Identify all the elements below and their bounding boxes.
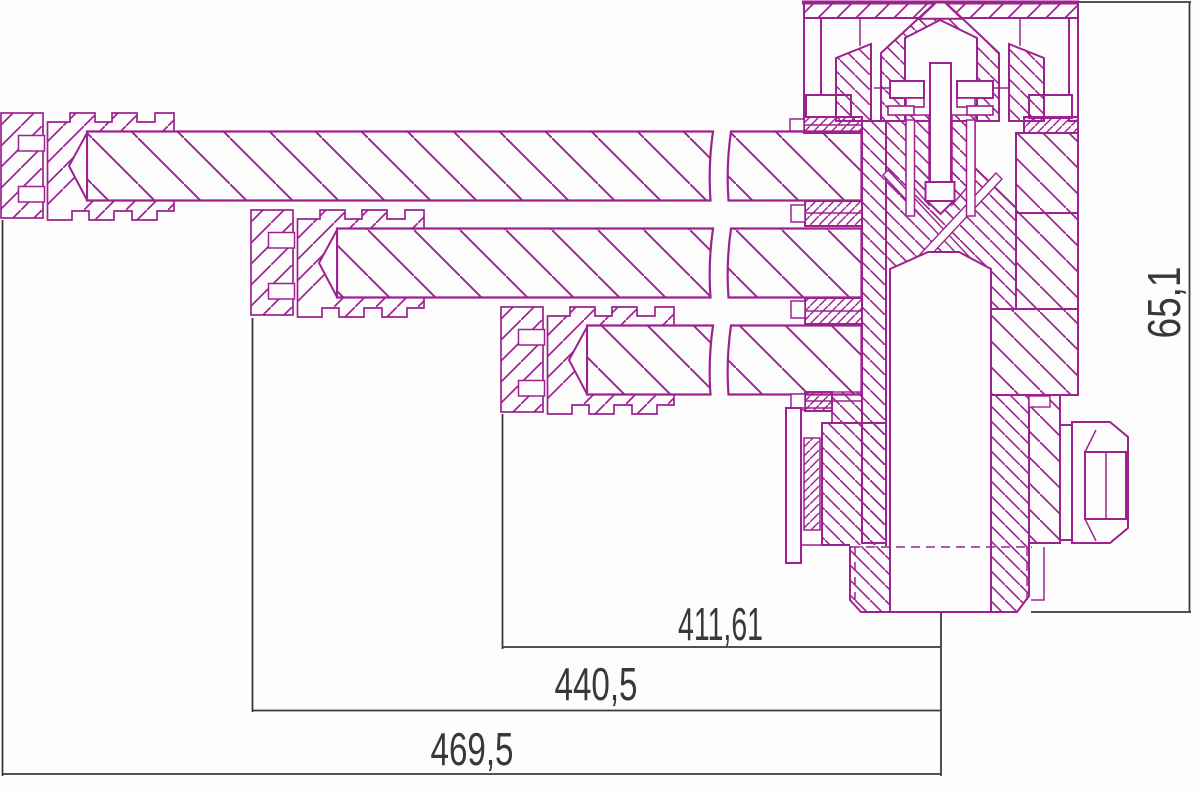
svg-text:469,5: 469,5: [431, 723, 514, 775]
svg-text:440,5: 440,5: [555, 658, 638, 710]
svg-text:411,61: 411,61: [678, 598, 763, 650]
svg-text:65,1: 65,1: [1138, 267, 1190, 339]
